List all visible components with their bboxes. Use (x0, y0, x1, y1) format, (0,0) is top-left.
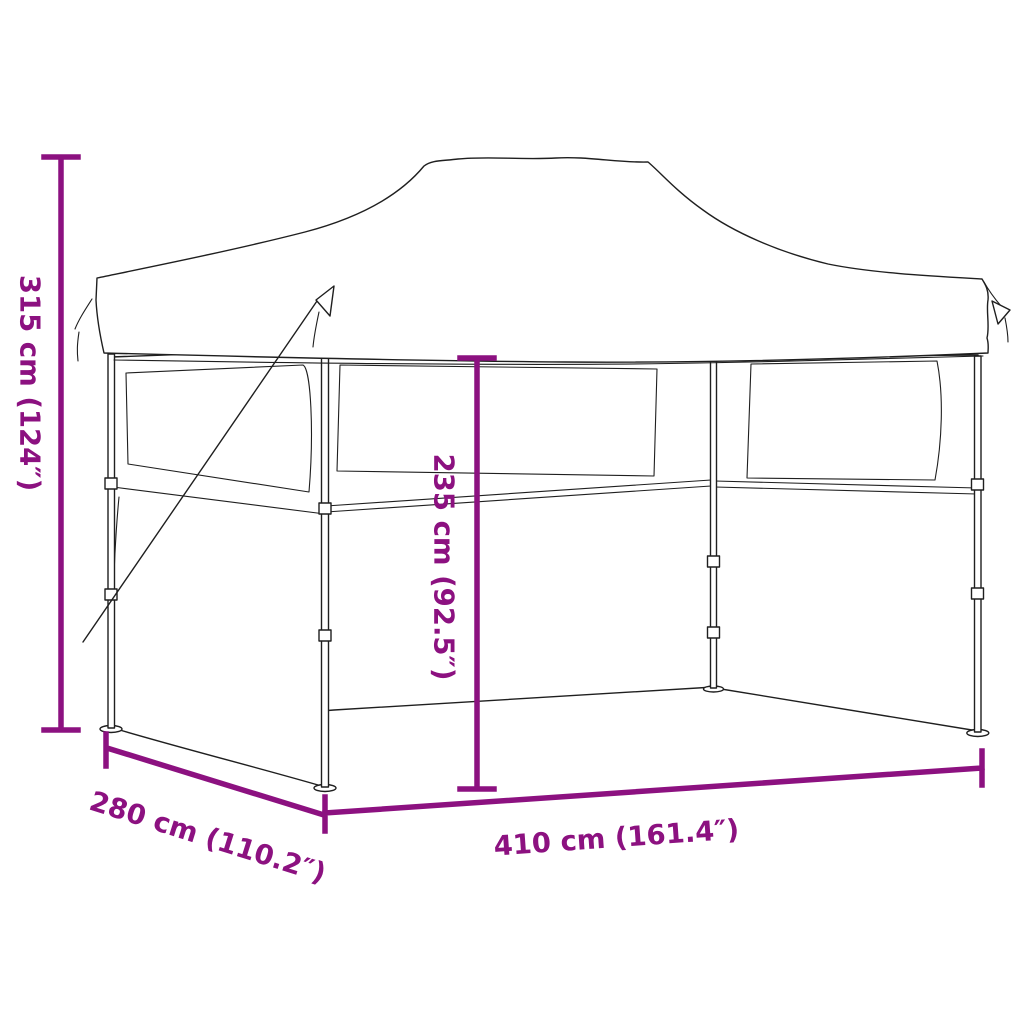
tent-diagram-canvas: 315 cm (124″) 235 cm (92.5″) 410 cm (161… (0, 0, 1024, 1024)
product-dimension-diagram: 315 cm (124″) 235 cm (92.5″) 410 cm (161… (0, 0, 1024, 1024)
right-corner-flag (992, 301, 1010, 324)
leg-right-sleeve-upper (972, 479, 984, 490)
dimension-total-height: 315 cm (124″) (13, 157, 78, 730)
dimension-inner-height-label: 235 cm (92.5″) (427, 454, 459, 681)
tent-canopy (96, 158, 988, 365)
leg-right-sleeve-lower (972, 588, 984, 599)
dimension-width-label: 410 cm (161.4″) (493, 813, 741, 862)
leg-left-sleeve-upper (105, 478, 117, 489)
left-corner-tie (75, 299, 92, 361)
right-corner-tail (1005, 318, 1008, 342)
dimension-total-height-label: 315 cm (124″) (13, 275, 45, 491)
leg-left-pole (108, 354, 115, 728)
dimension-depth-label: 280 cm (110.2″) (86, 785, 330, 889)
leg-front-sleeve-upper (319, 503, 331, 514)
leg-back-sleeve-lower (708, 627, 720, 638)
leg-back-sleeve-upper (708, 556, 720, 567)
leg-front-pole (322, 349, 329, 787)
dimension-total-height-line (44, 157, 78, 730)
sidewall-panel (111, 349, 325, 787)
leg-front-sleeve-lower (319, 630, 331, 641)
right-wall-panel (711, 355, 978, 731)
leg-right-pole (975, 356, 982, 732)
dimension-width: 410 cm (161.4″) (325, 751, 982, 863)
tent-sidewall-left (111, 349, 325, 787)
tent-right-wall (711, 355, 978, 731)
tent-drawing (75, 158, 1010, 792)
canopy-outline (96, 158, 988, 363)
